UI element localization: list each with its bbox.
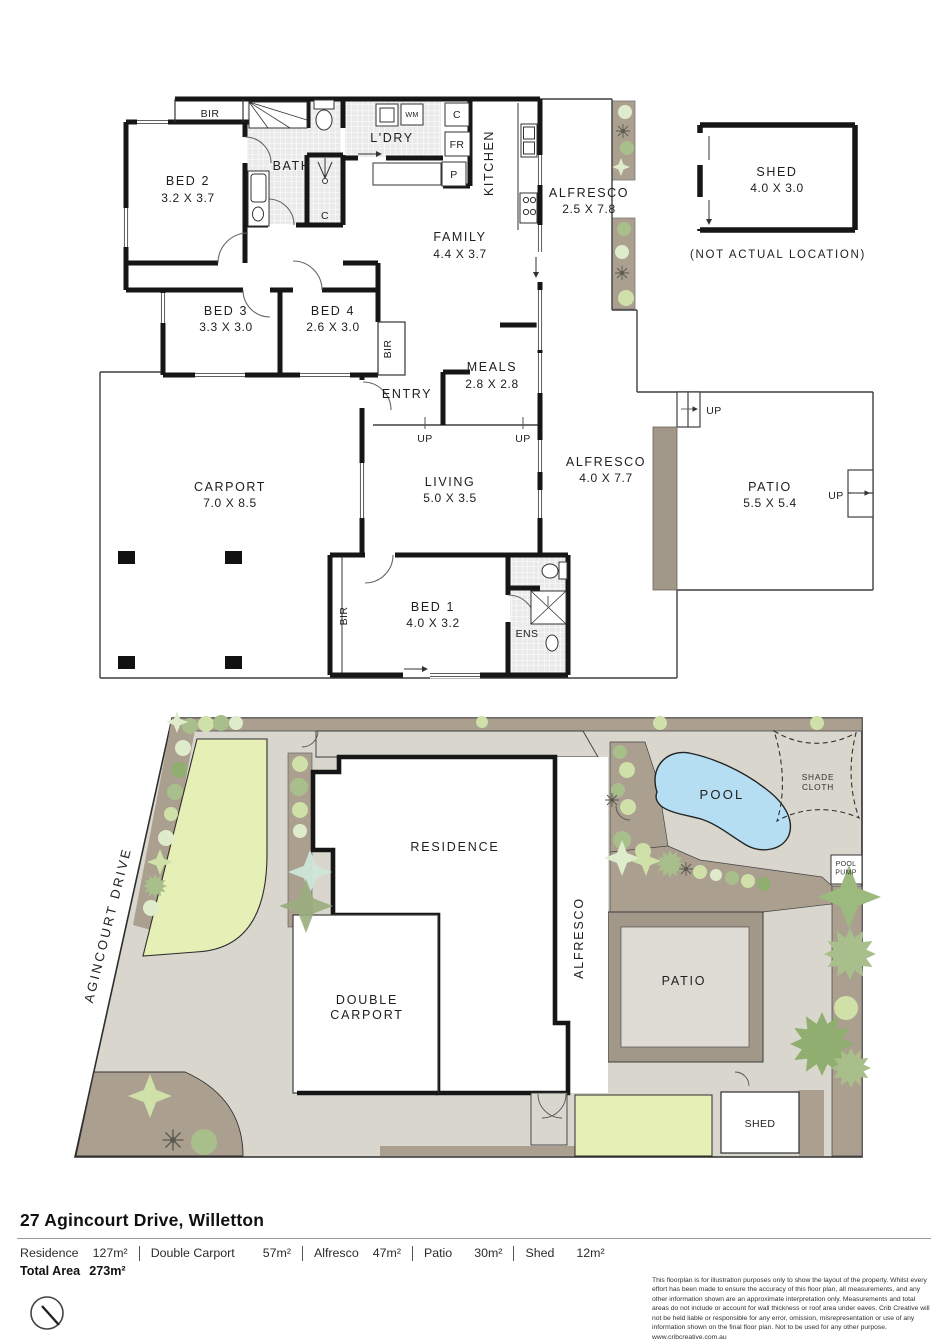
label-fridge: FR [450, 139, 465, 151]
label-linen2: C [321, 210, 329, 222]
label-meals: MEALS [467, 360, 517, 374]
label-bath: BATH [273, 159, 312, 173]
area-summary: Residence 127m² Double Carport 57m² Alfr… [20, 1246, 616, 1261]
divider-line [17, 1238, 931, 1239]
label-pantry: P [450, 169, 457, 181]
label-alfresco-side: ALFRESCO [566, 455, 646, 469]
label-living: LIVING [425, 475, 476, 489]
area-label: Double Carport [151, 1246, 235, 1261]
compass-needle [42, 1306, 59, 1325]
area-label: Shed [525, 1246, 554, 1261]
website-link: www.cribcreative.com.au [652, 1333, 934, 1339]
label-kitchen: KITCHEN [482, 130, 496, 196]
label-bed4-dims: 2.6 X 3.0 [306, 320, 359, 334]
label-site-patio: PATIO [662, 974, 707, 988]
label-bed2: BED 2 [166, 174, 210, 188]
area-value: 127m² [93, 1246, 128, 1261]
label-patio-dims: 5.5 X 5.4 [743, 496, 796, 510]
label-up1: UP [417, 433, 432, 445]
area-label: Alfresco [314, 1246, 359, 1261]
area-item: Patio 30m² [413, 1246, 514, 1261]
label-up2: UP [515, 433, 530, 445]
north-compass-icon [27, 1292, 69, 1338]
label-ens: ENS [516, 628, 539, 640]
rear-tan-band [380, 1146, 575, 1156]
total-area-label: Total Area [20, 1264, 80, 1278]
label-pool-pump: POOLPUMP [835, 861, 856, 876]
page-title: 27 Agincourt Drive, Willetton [20, 1210, 264, 1231]
label-carport: CARPORT [194, 480, 266, 494]
label-bed3-dims: 3.3 X 3.0 [199, 320, 252, 334]
area-value: 47m² [373, 1246, 401, 1261]
label-alfresco-rear: ALFRESCO [549, 186, 629, 200]
area-item: Alfresco 47m² [303, 1246, 413, 1261]
ens-toilet-icon [542, 564, 558, 578]
carport-posts [118, 551, 242, 669]
total-area-value: 273m² [89, 1264, 125, 1278]
label-bed2-dims: 3.2 X 3.7 [161, 191, 214, 205]
label-bed4: BED 4 [311, 304, 355, 318]
label-bed1: BED 1 [411, 600, 455, 614]
label-shade-cloth: SHADECLOTH [802, 772, 835, 792]
label-bed1-dims: 4.0 X 3.2 [406, 616, 459, 630]
total-area: Total Area 273m² [20, 1264, 126, 1278]
area-value: 30m² [474, 1246, 502, 1261]
disclaimer-text: This floorplan is for illustration purpo… [652, 1277, 930, 1331]
site-plan: AGINCOURT DRIVE RESIDENCE DOUBLECARPORT … [75, 711, 881, 1157]
label-living-dims: 5.0 X 3.5 [423, 491, 476, 505]
ens-basin-icon [546, 635, 558, 651]
rear-lawn [575, 1095, 712, 1156]
bench-icon [373, 163, 441, 185]
alfresco-paving-strip [653, 427, 677, 590]
label-entry: ENTRY [382, 387, 432, 401]
area-item: Double Carport 57m² [140, 1246, 303, 1261]
area-label: Residence [20, 1246, 79, 1261]
label-bed3: BED 3 [204, 304, 248, 318]
floorplan-page: BIR BED 2 3.2 X 3.7 BATH L'DRY C FR P WM… [0, 0, 946, 1339]
front-walkway [316, 731, 598, 757]
label-carport-dims: 7.0 X 8.5 [203, 496, 256, 510]
label-bir-bed1: BIR [338, 607, 350, 626]
toilet-icon [314, 100, 334, 109]
area-item: Residence 127m² [20, 1246, 140, 1261]
label-linen1: C [453, 109, 461, 121]
label-family-dims: 4.4 X 3.7 [433, 247, 486, 261]
label-site-carport: DOUBLECARPORT [330, 993, 404, 1022]
front-fence-band [169, 718, 862, 731]
area-item: Shed 12m² [514, 1246, 615, 1261]
plan-drawing: BIR BED 2 3.2 X 3.7 BATH L'DRY C FR P WM… [0, 0, 946, 1180]
shed-side-strip [799, 1090, 824, 1156]
area-value: 57m² [263, 1246, 291, 1261]
label-up4: UP [828, 490, 843, 502]
label-shed: SHED [756, 165, 797, 179]
disclaimer: This floorplan is for illustration purpo… [652, 1276, 934, 1339]
label-meals-dims: 2.8 X 2.8 [465, 377, 518, 391]
label-family: FAMILY [433, 230, 486, 244]
label-shed-dims: 4.0 X 3.0 [750, 181, 803, 195]
label-ldry: L'DRY [370, 131, 414, 145]
label-bir-bed4: BIR [382, 340, 394, 359]
label-alfresco-side-dims: 4.0 X 7.7 [579, 471, 632, 485]
label-site-pool: POOL [700, 787, 745, 802]
rear-porch [531, 1093, 567, 1145]
label-site-shed: SHED [745, 1118, 776, 1130]
area-label: Patio [424, 1246, 452, 1261]
label-up3: UP [706, 405, 721, 417]
label-site-residence: RESIDENCE [410, 840, 499, 854]
area-value: 12m² [576, 1246, 604, 1261]
label-wm: WM [405, 110, 418, 119]
label-site-alfresco: ALFRESCO [572, 897, 586, 979]
floor-plan: BIR BED 2 3.2 X 3.7 BATH L'DRY C FR P WM… [100, 99, 873, 678]
label-alfresco-rear-dims: 2.5 X 7.8 [562, 202, 615, 216]
label-shed-note: (NOT ACTUAL LOCATION) [690, 249, 866, 261]
label-bir-top: BIR [201, 108, 220, 120]
label-patio: PATIO [748, 480, 792, 494]
